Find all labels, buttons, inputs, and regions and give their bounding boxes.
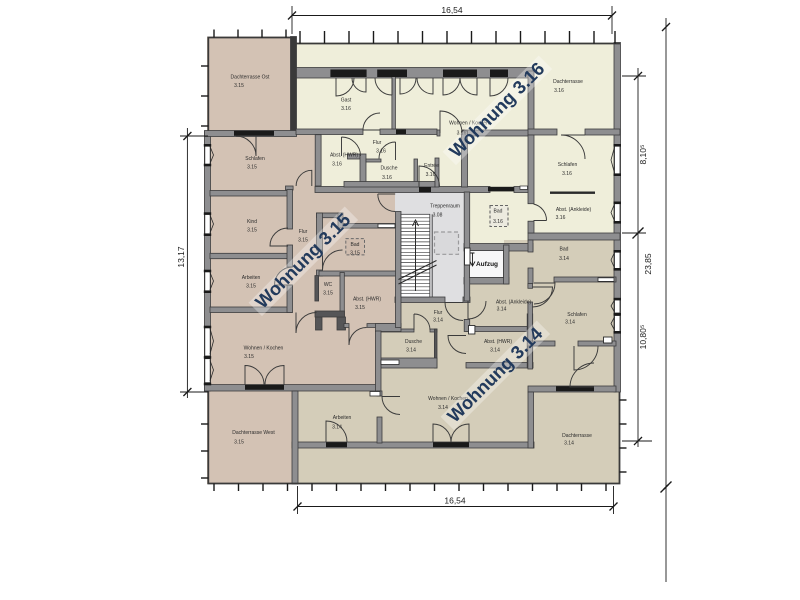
svg-text:WC: WC bbox=[324, 282, 333, 288]
svg-text:3.14: 3.14 bbox=[332, 425, 342, 431]
svg-text:Wohnen / Kochen: Wohnen / Kochen bbox=[244, 346, 284, 352]
svg-text:Schlafen: Schlafen bbox=[558, 162, 578, 168]
svg-text:3.15: 3.15 bbox=[350, 251, 360, 257]
svg-text:Abst. (HWR): Abst. (HWR) bbox=[330, 153, 358, 159]
svg-text:3.14: 3.14 bbox=[406, 348, 416, 354]
svg-text:3.14: 3.14 bbox=[433, 318, 443, 324]
svg-text:Bad: Bad bbox=[494, 209, 503, 215]
svg-text:16,54: 16,54 bbox=[441, 5, 463, 15]
svg-text:23,85: 23,85 bbox=[643, 253, 653, 275]
svg-text:Abst. (Ankleide): Abst. (Ankleide) bbox=[556, 207, 592, 213]
svg-text:3.15: 3.15 bbox=[244, 354, 254, 360]
svg-text:3.14: 3.14 bbox=[490, 348, 500, 354]
svg-text:10,80⁵: 10,80⁵ bbox=[638, 325, 648, 350]
svg-text:3.16: 3.16 bbox=[554, 88, 564, 94]
svg-text:3.16: 3.16 bbox=[341, 106, 351, 112]
svg-text:3.16: 3.16 bbox=[556, 215, 566, 221]
svg-text:Abst. (HWR): Abst. (HWR) bbox=[353, 297, 381, 303]
svg-text:Dachterrasse: Dachterrasse bbox=[562, 433, 592, 439]
svg-text:Arbeiten: Arbeiten bbox=[242, 275, 261, 281]
svg-text:Dachterrasse: Dachterrasse bbox=[553, 79, 583, 85]
svg-text:3.08: 3.08 bbox=[433, 213, 443, 219]
svg-text:3.15: 3.15 bbox=[234, 440, 244, 446]
svg-text:3.14: 3.14 bbox=[564, 441, 574, 447]
svg-text:3.14: 3.14 bbox=[559, 256, 569, 262]
svg-text:3.15: 3.15 bbox=[246, 284, 256, 290]
svg-text:3.16: 3.16 bbox=[426, 172, 436, 178]
svg-text:Flur: Flur bbox=[373, 140, 382, 146]
svg-text:Flur: Flur bbox=[434, 310, 443, 316]
svg-text:3.16: 3.16 bbox=[562, 171, 572, 177]
svg-text:Abst. (HWR): Abst. (HWR) bbox=[484, 339, 512, 345]
svg-text:Entrée: Entrée bbox=[424, 163, 439, 169]
svg-text:3.16: 3.16 bbox=[376, 149, 386, 155]
svg-text:3.16: 3.16 bbox=[332, 162, 342, 168]
svg-text:Aufzug: Aufzug bbox=[476, 261, 498, 268]
svg-text:Bad: Bad bbox=[560, 247, 569, 253]
svg-text:3.16: 3.16 bbox=[382, 175, 392, 181]
svg-text:3.16: 3.16 bbox=[493, 219, 503, 225]
svg-text:Dusche: Dusche bbox=[381, 166, 398, 172]
svg-text:3.15: 3.15 bbox=[247, 165, 257, 171]
svg-text:Arbeiten: Arbeiten bbox=[333, 415, 352, 421]
svg-text:8,10⁵: 8,10⁵ bbox=[638, 144, 648, 164]
svg-text:13,17: 13,17 bbox=[176, 246, 186, 268]
svg-text:Kind: Kind bbox=[247, 219, 257, 225]
svg-text:3.15: 3.15 bbox=[247, 228, 257, 234]
svg-text:Dusche: Dusche bbox=[405, 339, 422, 345]
svg-text:Abst. (Ankleide): Abst. (Ankleide) bbox=[496, 300, 532, 306]
svg-text:Flur: Flur bbox=[299, 229, 308, 235]
svg-text:3.14: 3.14 bbox=[565, 320, 575, 326]
svg-text:Dachterrasse Ost: Dachterrasse Ost bbox=[231, 75, 271, 81]
svg-text:Schlafen: Schlafen bbox=[567, 312, 587, 318]
svg-text:Schlafen: Schlafen bbox=[245, 156, 265, 162]
svg-text:Bad: Bad bbox=[351, 242, 360, 248]
svg-text:Treppenraum: Treppenraum bbox=[430, 204, 460, 210]
svg-text:3.15: 3.15 bbox=[323, 291, 333, 297]
svg-text:3.14: 3.14 bbox=[497, 307, 507, 313]
svg-text:Dachterrasse West: Dachterrasse West bbox=[232, 430, 275, 436]
svg-text:Gast: Gast bbox=[341, 98, 352, 104]
svg-text:16,54: 16,54 bbox=[444, 496, 466, 506]
svg-text:3.15: 3.15 bbox=[355, 305, 365, 311]
svg-text:3.15: 3.15 bbox=[234, 83, 244, 89]
